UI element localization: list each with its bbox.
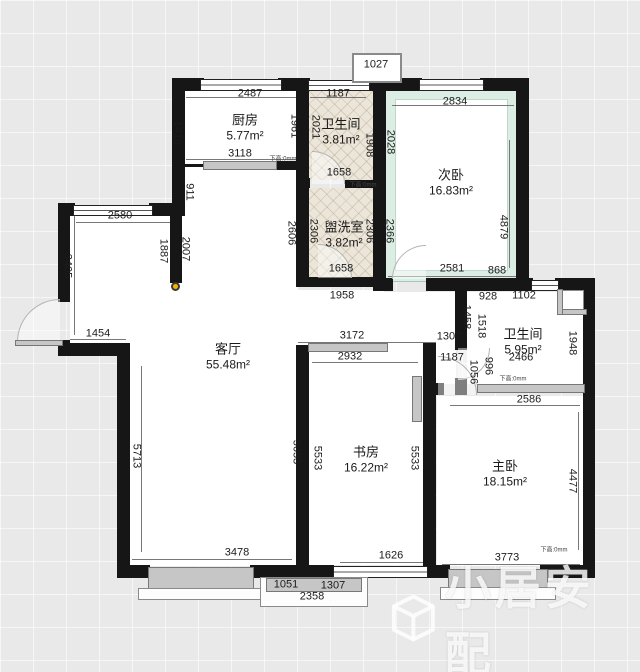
window-sill-living xyxy=(148,567,254,589)
dim-2487: 2487 xyxy=(238,89,262,100)
dim-928: 928 xyxy=(479,292,497,303)
dim-1948: 1948 xyxy=(567,331,578,355)
dim-1908: 1908 xyxy=(364,133,375,157)
entry-pivot-dot xyxy=(171,282,180,291)
room-bedroom2-name: 次卧 xyxy=(429,165,473,184)
wall xyxy=(58,203,70,302)
room-washroom-name: 盥洗室 xyxy=(324,217,363,236)
dim-1658-wash: 1658 xyxy=(329,264,353,275)
wall xyxy=(296,178,310,188)
dim-1102: 1102 xyxy=(512,291,536,302)
dim-3405: 3405 xyxy=(62,254,73,278)
dim-911: 911 xyxy=(184,183,195,201)
note-door-height: 下高:0mm xyxy=(540,545,567,554)
dim-1307-hall: 1307 xyxy=(437,332,461,343)
dim-line xyxy=(74,215,75,335)
wall xyxy=(540,565,595,578)
room-study-name: 书房 xyxy=(344,442,388,461)
wall xyxy=(373,278,393,291)
room-bedroom2[interactable]: 次卧 16.83m² xyxy=(429,165,473,198)
dim-1961: 1961 xyxy=(289,114,300,138)
dim-2366: 2366 xyxy=(384,219,395,243)
window-frame-living xyxy=(138,588,264,600)
panel-hall xyxy=(412,376,422,422)
dim-1056: 1056 xyxy=(468,360,479,384)
room-bedroom2-area: 16.83m² xyxy=(429,184,473,198)
dim-2028: 2028 xyxy=(385,130,396,154)
dim-2021: 2021 xyxy=(310,115,321,139)
dim-1658-bath1: 1658 xyxy=(327,168,351,179)
dim-5653: 5653 xyxy=(291,440,302,464)
dim-1518: 1518 xyxy=(476,314,487,338)
dim-3773: 3773 xyxy=(495,553,519,564)
wall xyxy=(117,565,150,578)
room-bath2[interactable]: 卫生间 5.95m² xyxy=(503,324,542,357)
wall xyxy=(583,285,595,578)
dim-2580: 2580 xyxy=(108,211,132,222)
dim-line xyxy=(340,562,428,563)
dim-2834: 2834 xyxy=(443,97,467,108)
dim-1458: 1458 xyxy=(461,305,472,329)
wall xyxy=(516,78,529,290)
dim-4477: 4477 xyxy=(567,469,578,493)
dim-1187-top: 1187 xyxy=(326,89,350,100)
wall xyxy=(117,350,130,578)
room-bath2-name: 卫生间 xyxy=(503,324,542,343)
room-kitchen[interactable]: 厨房 5.77m² xyxy=(226,110,263,143)
dim-2007: 2007 xyxy=(180,237,191,261)
note-door-height: 下高:0mm xyxy=(349,180,376,189)
sliding-door-bath2-bottom xyxy=(477,384,585,393)
room-bath1-name: 卫生间 xyxy=(321,114,360,133)
dim-5533-left: 5533 xyxy=(312,446,323,470)
window-bedroom2 xyxy=(419,79,484,91)
dim-line xyxy=(76,222,180,223)
dim-line xyxy=(450,405,580,406)
bath2-corner-niche xyxy=(560,290,584,311)
dim-2932: 2932 xyxy=(338,352,362,363)
room-washroom[interactable]: 盥洗室 3.82m² xyxy=(324,217,363,250)
dim-line xyxy=(312,362,418,363)
room-study[interactable]: 书房 16.22m² xyxy=(344,442,388,475)
note-door-height: 下高:0mm xyxy=(499,374,526,383)
dim-2586: 2586 xyxy=(517,395,541,406)
dim-5533-right: 5533 xyxy=(409,446,420,470)
room-bath1-area: 3.81m² xyxy=(321,133,360,147)
dim-868: 868 xyxy=(488,266,506,277)
dim-2581: 2581 xyxy=(440,264,464,275)
dim-1416: 1416 xyxy=(172,121,183,145)
dim-1454: 1454 xyxy=(86,329,110,340)
room-washroom-area: 3.82m² xyxy=(324,236,363,250)
room-kitchen-area: 5.77m² xyxy=(226,129,263,143)
room-master-area: 18.15m² xyxy=(483,475,527,489)
dim-1887: 1887 xyxy=(158,239,169,263)
bath2-niche-trim-v xyxy=(557,289,563,315)
room-study-area: 16.22m² xyxy=(344,461,388,475)
dim-1187-hall: 1187 xyxy=(440,353,464,364)
dim-1958: 1958 xyxy=(330,291,354,302)
dim-line xyxy=(509,140,510,268)
floor-living-main xyxy=(129,214,298,566)
room-bath1[interactable]: 卫生间 3.81m² xyxy=(321,114,360,147)
dim-2358: 2358 xyxy=(300,592,324,603)
window-frame-master xyxy=(440,587,556,600)
room-living[interactable]: 客厅 55.48m² xyxy=(206,339,250,372)
dim-line xyxy=(132,559,292,560)
door-leaf-entry xyxy=(15,340,63,346)
dim-1626: 1626 xyxy=(379,551,403,562)
room-master[interactable]: 主卧 18.15m² xyxy=(483,456,527,489)
note-door-height: 下高:0mm xyxy=(269,154,296,163)
dim-2606: 2606 xyxy=(286,221,297,245)
dim-1307-bay: 1307 xyxy=(321,581,345,592)
watermark-logo-icon xyxy=(388,592,439,644)
dim-2306-right: 2306 xyxy=(364,219,375,243)
room-living-name: 客厅 xyxy=(206,339,250,358)
dim-4879: 4879 xyxy=(498,215,509,239)
room-living-area: 55.48m² xyxy=(206,358,250,372)
door-arc-entry xyxy=(17,299,60,342)
sliding-door-kitchen xyxy=(203,161,277,170)
dim-3478: 3478 xyxy=(225,548,249,559)
dim-3172: 3172 xyxy=(340,331,364,342)
wall xyxy=(423,343,436,578)
room-master-name: 主卧 xyxy=(483,456,527,475)
dim-1027: 1027 xyxy=(364,60,388,71)
dim-5713: 5713 xyxy=(131,444,142,468)
room-bath2-area: 5.95m² xyxy=(503,343,542,357)
room-kitchen-name: 厨房 xyxy=(226,110,263,129)
floorplan-canvas: 1027 2487 1187 2834 1416 1961 2021 1908 … xyxy=(0,0,640,672)
window-sill-master xyxy=(448,569,548,588)
wall xyxy=(309,277,383,287)
dim-3118: 3118 xyxy=(228,149,252,160)
dim-996: 996 xyxy=(483,357,494,375)
dim-1051: 1051 xyxy=(274,580,298,591)
dim-2306-left: 2306 xyxy=(308,219,319,243)
